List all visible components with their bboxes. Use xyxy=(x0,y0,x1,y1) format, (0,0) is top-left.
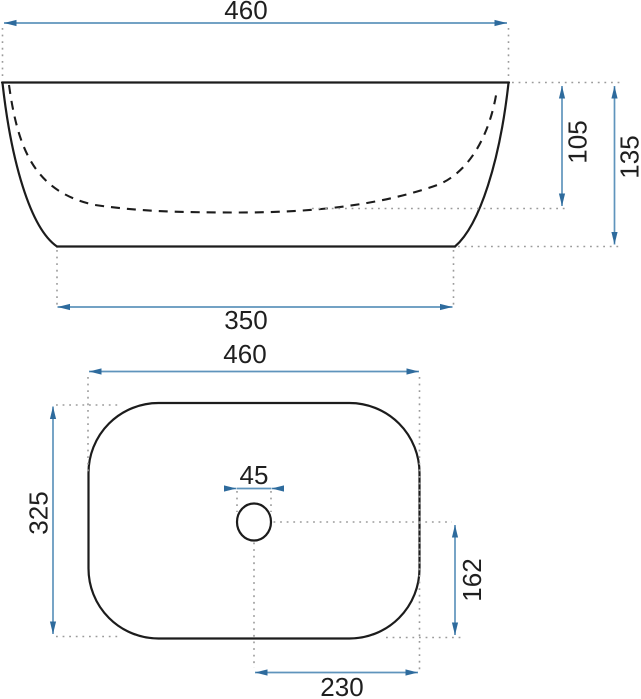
dim-drain-diameter-label: 45 xyxy=(240,460,269,490)
basin-left-wall xyxy=(3,83,58,247)
dim-drain-to-side: 230 xyxy=(254,543,418,699)
washbasin-technical-drawing: 460 105 135 350 xyxy=(0,0,641,699)
front-elevation-view: 460 105 135 350 xyxy=(2,0,641,335)
dim-drain-to-side-label: 230 xyxy=(320,672,363,699)
dim-plan-depth: 325 xyxy=(24,405,121,637)
dim-front-basin-depth-label: 105 xyxy=(563,120,593,163)
dim-front-width-top: 460 xyxy=(3,0,509,78)
plan-view: 460 325 45 xyxy=(24,339,488,699)
basin-right-wall xyxy=(455,83,509,247)
dim-plan-depth-label: 325 xyxy=(24,491,54,534)
drain-hole xyxy=(237,504,271,541)
dim-plan-width-label: 460 xyxy=(223,339,266,369)
dim-drain-to-edge: 162 xyxy=(274,522,488,638)
dim-front-width-top-label: 460 xyxy=(224,0,267,25)
dim-front-total-height: 135 xyxy=(458,86,641,247)
dim-front-base-width: 350 xyxy=(57,250,454,335)
technical-drawing-page: 460 105 135 350 xyxy=(0,0,641,699)
basin-front-outline xyxy=(2,83,509,247)
basin-inner-contour-dashed xyxy=(9,85,497,213)
dim-drain-to-edge-label: 162 xyxy=(457,558,487,601)
dim-front-total-height-label: 135 xyxy=(615,135,641,178)
dim-front-base-width-label: 350 xyxy=(224,305,267,335)
dim-front-basin-depth: 105 xyxy=(312,83,621,209)
